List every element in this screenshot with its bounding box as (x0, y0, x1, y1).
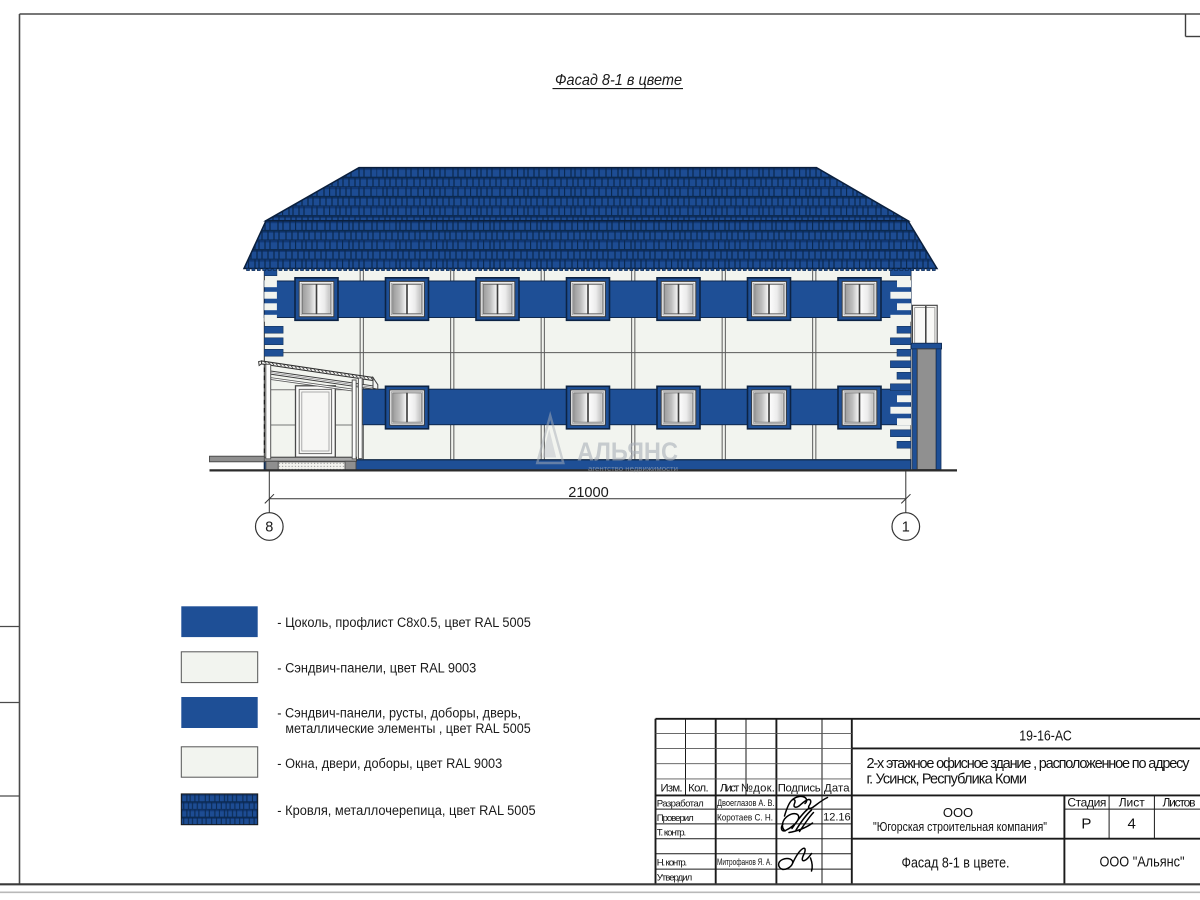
svg-text:- Цоколь, профлист С8х0.5, цве: - Цоколь, профлист С8х0.5, цвет RAL 5005 (277, 615, 531, 631)
svg-text:Стадия: Стадия (1067, 796, 1106, 810)
svg-text:4: 4 (1128, 816, 1136, 833)
svg-text:21000: 21000 (568, 485, 609, 501)
svg-text:- Сэндвич-панели, цвет RAL 900: - Сэндвич-панели, цвет RAL 9003 (277, 660, 476, 676)
svg-text:- Окна, двери, доборы, цвет RA: - Окна, двери, доборы, цвет RAL 9003 (277, 756, 502, 772)
svg-text:Фасад 8-1 в цвете.: Фасад 8-1 в цвете. (902, 854, 1010, 871)
svg-text:12.16: 12.16 (823, 812, 851, 824)
svg-text:Лист: Лист (1119, 796, 1146, 810)
svg-text:Т. контр.: Т. контр. (657, 827, 687, 838)
svg-text:Лист: Лист (720, 782, 740, 794)
svg-text:Фасад 8-1 в цвете: Фасад 8-1 в цвете (555, 72, 682, 89)
svg-text:АЛЬЯНС: АЛЬЯНС (577, 437, 678, 467)
svg-text:металлические элементы , цвет: металлические элементы , цвет RAL 5005 (285, 721, 530, 737)
svg-text:Изм.: Изм. (661, 782, 683, 794)
svg-text:- Сэндвич-панели, русты, добор: - Сэндвич-панели, русты, доборы, дверь, (277, 706, 521, 722)
svg-text:Дата: Дата (824, 782, 850, 794)
svg-text:19-16-АС: 19-16-АС (1019, 728, 1072, 744)
svg-text:Коротаев С. Н.: Коротаев С. Н. (717, 812, 773, 823)
svg-text:8: 8 (265, 520, 273, 536)
svg-text:Кол.: Кол. (688, 782, 709, 794)
svg-text:1: 1 (902, 520, 910, 536)
svg-text:Подпись: Подпись (778, 782, 821, 794)
svg-text:Р: Р (1081, 816, 1091, 833)
svg-text:Двоеглазов А. В.: Двоеглазов А. В. (717, 797, 775, 808)
svg-text:"Югорская строительная компани: "Югорская строительная компания" (873, 820, 1047, 834)
svg-text:г. Усинск, Республика Коми: г. Усинск, Республика Коми (867, 772, 1028, 788)
svg-text:ООО "Альянс": ООО "Альянс" (1100, 854, 1185, 871)
svg-text:Н. контр.: Н. контр. (657, 858, 688, 869)
svg-text:№док.: №док. (741, 782, 775, 794)
svg-text:- Кровля, металлочерепица, цве: - Кровля, металлочерепица, цвет RAL 5005 (277, 803, 535, 819)
svg-text:Утвердил: Утвердил (657, 873, 693, 884)
svg-text:ООО: ООО (943, 805, 973, 820)
svg-text:Листов: Листов (1163, 796, 1196, 810)
svg-text:агентство недвижимости: агентство недвижимости (588, 464, 678, 473)
svg-text:Разработал: Разработал (657, 798, 704, 809)
svg-text:2-х этажное офисное здание , р: 2-х этажное офисное здание , расположенн… (867, 756, 1191, 772)
svg-text:Проверил: Проверил (657, 813, 694, 824)
svg-text:Митрофанов Я. А.: Митрофанов Я. А. (717, 856, 772, 867)
